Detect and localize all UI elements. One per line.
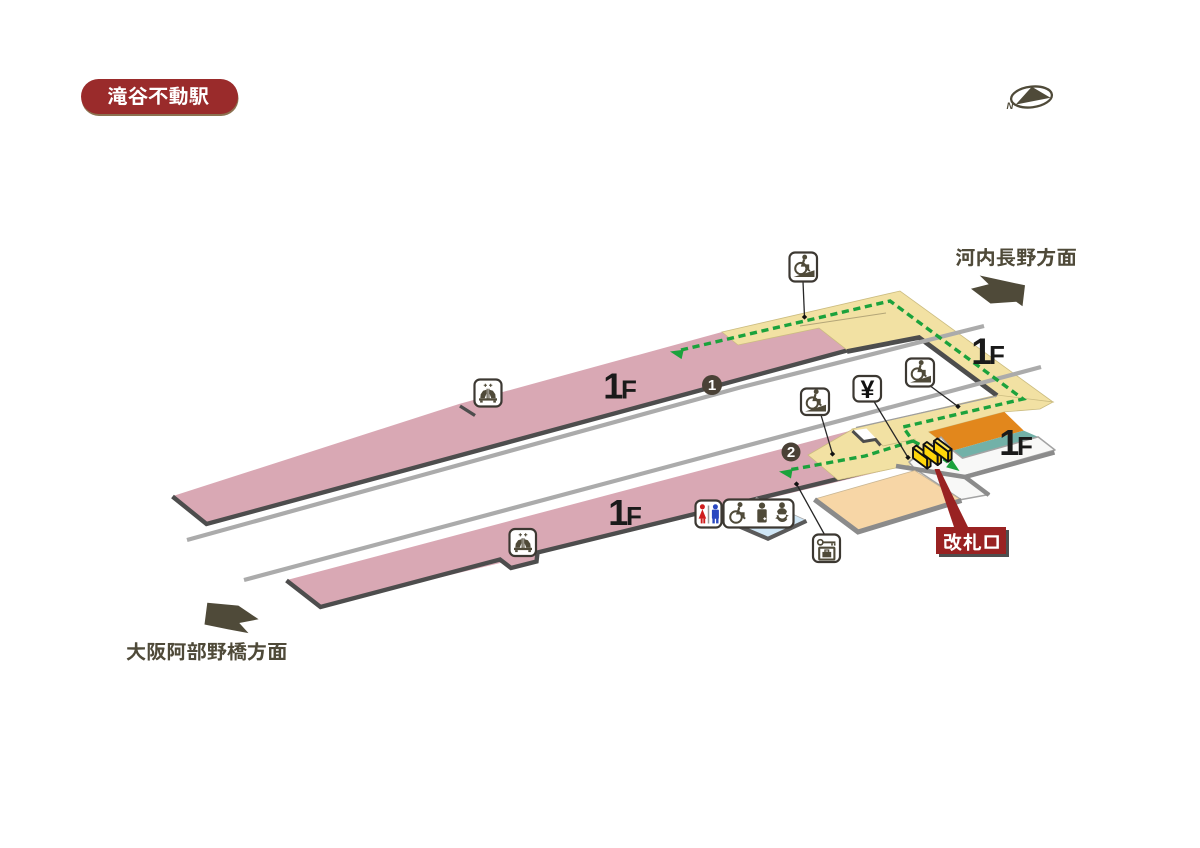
svg-text:F: F — [989, 340, 1005, 370]
svg-text:1: 1 — [708, 377, 716, 394]
svg-text:F: F — [1017, 431, 1033, 461]
svg-text:2: 2 — [787, 444, 795, 461]
svg-text:F: F — [621, 375, 637, 405]
svg-text:F: F — [626, 501, 642, 531]
svg-text:N: N — [1007, 101, 1015, 112]
svg-text:¥: ¥ — [861, 376, 875, 404]
